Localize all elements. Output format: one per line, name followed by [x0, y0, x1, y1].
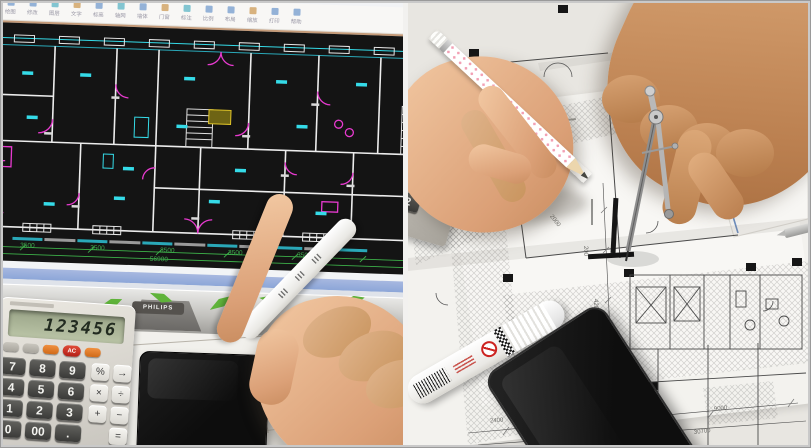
- calculator-display-value: 123456: [43, 315, 118, 340]
- toolbar-label: 帮助: [291, 16, 302, 24]
- stairwell: [186, 99, 403, 155]
- toolbar-label: 绘图: [5, 6, 16, 14]
- digit-key[interactable]: 3: [56, 403, 83, 422]
- monitor-brand-badge: PHILIPS: [132, 301, 184, 315]
- right-photo-blueprint-scene: 2400 9000 30700 2000 420 200 0 1 2: [408, 3, 808, 445]
- curtain-wall-band: [3, 34, 403, 59]
- floorplan-walls: [3, 44, 403, 241]
- toolbar-label: 墙体: [137, 11, 148, 19]
- calculator-digit-keys: 7 8 9 4 5 6 1 2 3 0 00 .: [3, 357, 86, 443]
- toolbar-item[interactable]: 文字: [70, 3, 83, 18]
- toolbar-label: 缩放: [247, 15, 258, 23]
- equals-key[interactable]: =: [108, 427, 127, 445]
- dimension-label: 3500: [228, 249, 243, 257]
- digit-key[interactable]: 6: [57, 382, 84, 401]
- monitor-brand-label: PHILIPS: [143, 304, 174, 311]
- dimension-label: 3500: [90, 245, 105, 253]
- digit-key[interactable]: 5: [27, 380, 54, 399]
- toolbar-item[interactable]: 比例: [202, 5, 215, 22]
- monitor: 绘图 修改 图层 文字 标高 轴网 墙体 门窗 标注 比例 布局 缩放 打印 帮…: [3, 3, 403, 340]
- text-icon: [73, 3, 80, 8]
- digit-key[interactable]: .: [54, 424, 81, 443]
- toolbar-label: 轴网: [115, 10, 126, 18]
- pen-print: [311, 253, 322, 264]
- toolbar-label: 布局: [225, 14, 236, 22]
- pen-print: [278, 287, 289, 298]
- digit-key[interactable]: 00: [25, 422, 52, 441]
- cyan-fixtures: [103, 116, 149, 170]
- toolbar-item[interactable]: 缩放: [246, 6, 259, 23]
- wall-icon: [139, 3, 146, 10]
- memory-key[interactable]: [3, 342, 19, 352]
- digit-key[interactable]: 2: [26, 401, 53, 420]
- toolbar-label: 门窗: [159, 12, 170, 20]
- photo-composite: 绘图 修改 图层 文字 标高 轴网 墙体 门窗 标注 比例 布局 缩放 打印 帮…: [0, 0, 811, 448]
- left-photo-cad-monitor-scene: 绘图 修改 图层 文字 标高 轴网 墙体 门窗 标注 比例 布局 缩放 打印 帮…: [3, 3, 403, 445]
- help-icon: [293, 8, 300, 15]
- screen-reflection: [147, 358, 238, 401]
- toolbar-item[interactable]: 打印: [268, 7, 281, 24]
- all-clear-key[interactable]: AC: [62, 345, 81, 357]
- digit-key[interactable]: 4: [3, 378, 25, 397]
- correct-key[interactable]: [84, 347, 101, 357]
- dimension-label: 3500: [20, 242, 35, 250]
- pen-print: [295, 270, 306, 281]
- drafting-compass: [408, 3, 808, 445]
- door-window-icon: [161, 3, 168, 10]
- compass-parts: [626, 86, 678, 261]
- toolbar-item[interactable]: 墙体: [136, 3, 149, 20]
- selected-object-highlight: [209, 110, 231, 125]
- toolbar-label: 文字: [71, 9, 82, 17]
- zoom-icon: [249, 7, 256, 14]
- toolbar-label: 比例: [203, 13, 214, 21]
- desk-calculator[interactable]: 123456 AC 7 8 9 4 5 6 1 2 3 0 00: [3, 296, 136, 445]
- digit-key[interactable]: 9: [59, 361, 86, 380]
- smartphone-left[interactable]: [136, 351, 269, 445]
- toolbar-label: 打印: [269, 16, 280, 24]
- digit-key[interactable]: 0: [3, 419, 22, 438]
- dimension-icon: [183, 4, 190, 11]
- draw-icon: [7, 3, 14, 5]
- plus-key[interactable]: +: [88, 405, 107, 423]
- layout-icon: [227, 6, 234, 13]
- digit-key[interactable]: 8: [29, 359, 56, 378]
- shift-key[interactable]: →: [113, 365, 132, 383]
- digit-key[interactable]: 1: [3, 398, 23, 417]
- toolbar-item[interactable]: 标高: [92, 3, 105, 18]
- clear-entry-key[interactable]: [43, 345, 60, 355]
- toolbar-item[interactable]: 图层: [48, 3, 61, 17]
- print-icon: [271, 7, 278, 14]
- calculator-operator-keys: % → × ÷ + − =: [86, 363, 131, 445]
- toolbar-label: 标高: [93, 10, 104, 18]
- modify-icon: [29, 3, 36, 6]
- dimension-label: 3500: [160, 247, 175, 255]
- divide-key[interactable]: ÷: [111, 385, 130, 403]
- minus-key[interactable]: −: [110, 406, 129, 424]
- grid-icon: [117, 3, 124, 9]
- toolbar-label: 修改: [27, 7, 38, 15]
- level-icon: [95, 3, 102, 8]
- toolbar-item[interactable]: 标注: [180, 4, 193, 21]
- toolbar-item[interactable]: 布局: [224, 6, 237, 23]
- toolbar-item[interactable]: 门窗: [158, 3, 171, 20]
- multiply-key[interactable]: ×: [89, 384, 108, 402]
- toolbar-item[interactable]: 帮助: [290, 8, 303, 25]
- layers-icon: [51, 3, 58, 7]
- toolbar-label: 标注: [181, 13, 192, 21]
- digit-key[interactable]: 7: [3, 357, 26, 376]
- room-labels: [18, 71, 367, 216]
- toolbar-label: 图层: [49, 8, 60, 16]
- toolbar-item[interactable]: 轴网: [114, 3, 127, 19]
- scale-icon: [205, 5, 212, 12]
- percent-key[interactable]: %: [91, 363, 110, 381]
- toolbar-item[interactable]: 绘图: [4, 3, 17, 15]
- memory-key[interactable]: [23, 343, 40, 353]
- toolbar-item[interactable]: 修改: [26, 3, 39, 16]
- dimension-total-label: 56900: [150, 256, 168, 264]
- door-swings: [3, 44, 357, 238]
